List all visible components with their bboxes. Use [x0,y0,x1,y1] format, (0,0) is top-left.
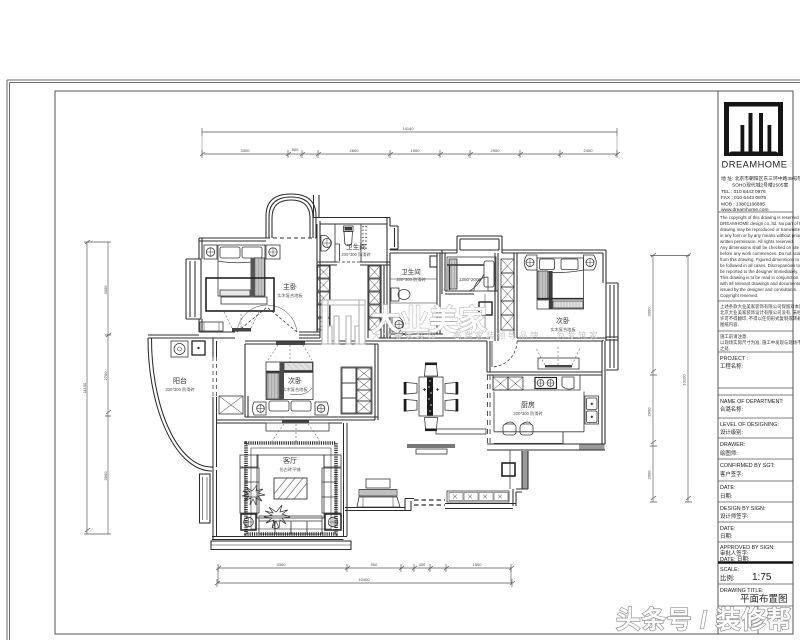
svg-text:大业美家装饰 · 高端家装领导品牌 · 为爱筑家: 大业美家装饰 · 高端家装领导品牌 · 为爱筑家 [372,331,600,341]
svg-text:实木复合地板: 实木复合地板 [277,292,303,299]
svg-text:2400: 2400 [584,148,594,153]
svg-text:次卧: 次卧 [556,316,570,325]
svg-text:DREAMHOME: DREAMHOME [722,160,788,170]
svg-text:平面布置图: 平面布置图 [740,593,788,605]
svg-text:头条号 / 装修帮: 头条号 / 装修帮 [616,606,792,634]
svg-text:设计师签字:: 设计师签字: [720,512,748,520]
svg-text:绘图师:: 绘图师: [720,449,738,457]
svg-text:之处,: 之处, [720,345,730,352]
svg-text:DESIGN BY SIGN:: DESIGN BY SIGN: [720,506,765,512]
svg-text:PROJECT :: PROJECT : [720,356,748,362]
svg-text:DRAWER:: DRAWER: [720,442,745,448]
svg-text:日期:: 日期: [720,493,732,500]
svg-text:200*300 防滑砖: 200*300 防滑砖 [341,251,370,258]
svg-text:1900: 1900 [411,148,421,153]
svg-text:客户签字:: 客户签字: [720,470,743,478]
svg-text:LEVEL OF DESIGNING:: LEVEL OF DESIGNING: [720,422,779,428]
svg-text:设计级别:: 设计级别: [720,428,743,436]
svg-text:2900: 2900 [491,148,501,153]
svg-text:卫生间: 卫生间 [401,267,421,276]
svg-text:This drawing is to be read in: This drawing is to be read in conjunctio… [720,275,799,280]
svg-text:2700: 2700 [103,371,108,381]
svg-text:DATE:: DATE: [720,526,735,532]
svg-text:仿古砖平铺: 仿古砖平铺 [280,466,301,473]
svg-text:3300: 3300 [277,562,287,567]
svg-text:卫生间: 卫生间 [346,242,366,251]
svg-text:阳台: 阳台 [173,376,187,385]
svg-text:issued by the designer and con: issued by the designer and consultants. [720,287,797,292]
svg-text:Any dimensions shall be checke: Any dimensions shall be checked on site [720,245,800,250]
svg-text:客厅: 客厅 [283,456,297,465]
svg-text:DATE: 日期:: DATE: 日期: [720,556,749,563]
svg-text:以现场实际尺寸为准, 施工中发现与现场不符: 以现场实际尺寸为准, 施工中发现与现场不符 [720,339,800,346]
svg-text:written permission. All rights: written permission. All rights reserved. [720,239,794,244]
svg-text:3000: 3000 [103,285,108,295]
svg-text:before any work commences. Do: before any work commences. Do not scale [720,251,800,256]
svg-text:14140: 14140 [402,126,414,131]
svg-text:3300: 3300 [241,148,251,153]
svg-text:200*300 防滑砖: 200*300 防滑砖 [513,410,542,417]
svg-text:1500: 1500 [473,562,483,567]
svg-text:比例:: 比例: [720,573,735,582]
svg-text:3900: 3900 [103,471,108,481]
svg-text:11100: 11100 [82,382,87,393]
svg-text:实木复合地板: 实木复合地板 [282,386,308,393]
svg-text:次卧: 次卧 [288,376,302,385]
svg-text:800: 800 [292,147,299,152]
svg-text:with all relevant drawings and: with all relevant drawings and documents [720,281,800,286]
svg-text:上述条款大业美家装饰有限公司保留对本图纸的,: 上述条款大业美家装饰有限公司保留对本图纸的, [720,303,800,310]
svg-text:drawing may be reproduced or t: drawing may be reproduced or transmitted [720,227,800,232]
svg-text:in any form or by any means wi: in any form or by any means without prio… [720,233,800,238]
svg-text:900: 900 [371,562,378,567]
svg-text:MOB : 13801106885: MOB : 13801106885 [721,202,765,208]
svg-text:The copyright of this drawing: The copyright of this drawing is reserve… [720,215,800,220]
svg-text:CONFIRMED BY SGT:: CONFIRMED BY SGT: [720,463,775,469]
svg-text:地 址: 北京市朝阳区东三环中路39号院: 地 址: 北京市朝阳区东三环中路39号院 [721,175,800,182]
svg-text:10400: 10400 [358,577,370,582]
svg-text:DATE:: DATE: [720,485,735,491]
svg-text:SOHO现代城2号楼2505室: SOHO现代城2号楼2505室 [732,182,788,189]
svg-text:200*300 防滑砖: 200*300 防滑砖 [165,386,194,393]
svg-text:1350*2000: 1350*2000 [459,277,482,282]
svg-text:FAX : 010 6443 0975: FAX : 010 6443 0975 [721,195,766,201]
svg-text:Copyright reserved.: Copyright reserved. [720,293,758,298]
svg-text:施工前请注意,: 施工前请注意, [720,333,748,340]
svg-text:10100: 10100 [682,374,687,386]
svg-text:from this drawing. Figured dim: from this drawing. Figured dimensions to [720,257,800,262]
svg-text:许可不得翻印, 不得以任何形式复制或转载本: 许可不得翻印, 不得以任何形式复制或转载本 [720,315,800,322]
svg-text:日期:: 日期: [720,533,732,540]
svg-text:主卧: 主卧 [283,282,297,291]
svg-text:2900: 2900 [647,407,652,417]
svg-text:TEL : 010 6443 0976: TEL : 010 6443 0976 [721,189,766,195]
svg-text:厨房: 厨房 [521,400,535,409]
svg-text:工程名称:: 工程名称: [720,362,743,370]
svg-text:北京大业美家装饰设计有限公司没有, 未经: 北京大业美家装饰设计有限公司没有, 未经 [720,309,800,316]
svg-text:2600: 2600 [350,148,360,153]
svg-text:be followed in all cases. Disc: be followed in all cases. Discrepancies … [720,263,800,268]
svg-text:NAME OF DEPARTMENT:: NAME OF DEPARTMENT: [720,399,784,405]
svg-text:www.dreamhome.com: www.dreamhome.com [721,207,768,213]
svg-text:2000: 2000 [647,470,652,480]
svg-text:200*300 防滑砖: 200*300 防滑砖 [396,276,425,283]
svg-text:400: 400 [419,562,426,567]
svg-text:DREAMHOME design co.,ltd. No p: DREAMHOME design co.,ltd. No part of thi… [720,221,800,226]
svg-text:图纸内容.: 图纸内容. [720,321,739,328]
svg-text:be reported to the designer im: be reported to the designer immediately. [720,269,798,274]
svg-text:SCALE:: SCALE: [720,567,739,573]
svg-text:审批人签字:: 审批人签字: [720,549,748,557]
svg-text:3300: 3300 [647,307,652,317]
svg-text:1:75: 1:75 [752,572,772,583]
svg-text:合潞名称:: 合潞名称: [720,405,743,413]
